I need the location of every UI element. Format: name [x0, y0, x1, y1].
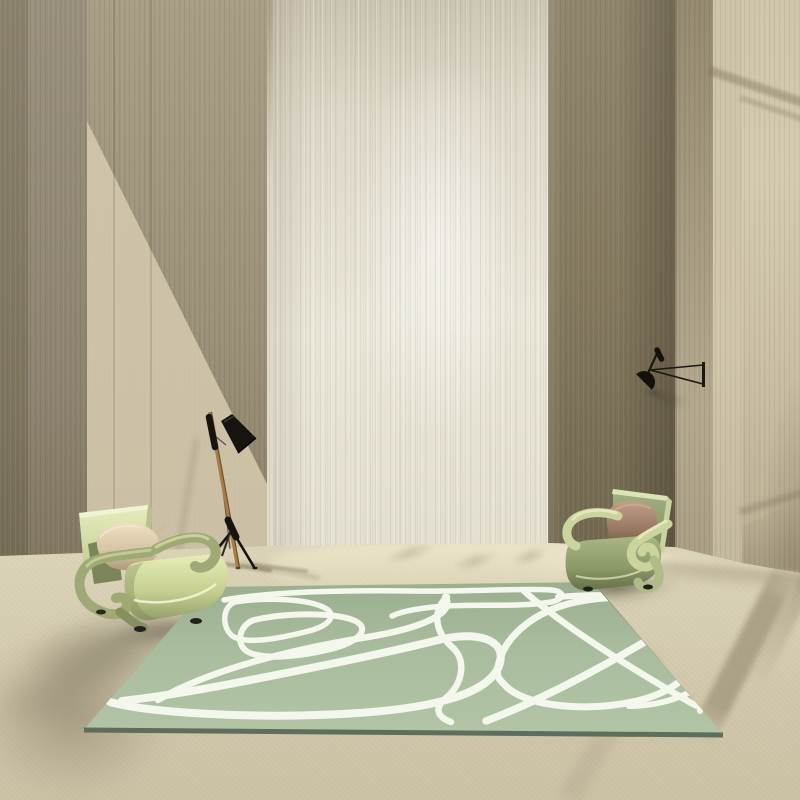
chair-foot: [583, 587, 593, 592]
floor-lamp-pivot: [209, 417, 215, 447]
chair-foot: [96, 610, 106, 615]
area-rug: [0, 0, 800, 800]
interior-scene: [0, 0, 800, 800]
armchair-left: [40, 480, 280, 650]
chair-foot: [643, 585, 653, 590]
armchair-right: [550, 470, 760, 640]
chair-foot: [190, 618, 202, 624]
chair-foot: [134, 626, 146, 632]
